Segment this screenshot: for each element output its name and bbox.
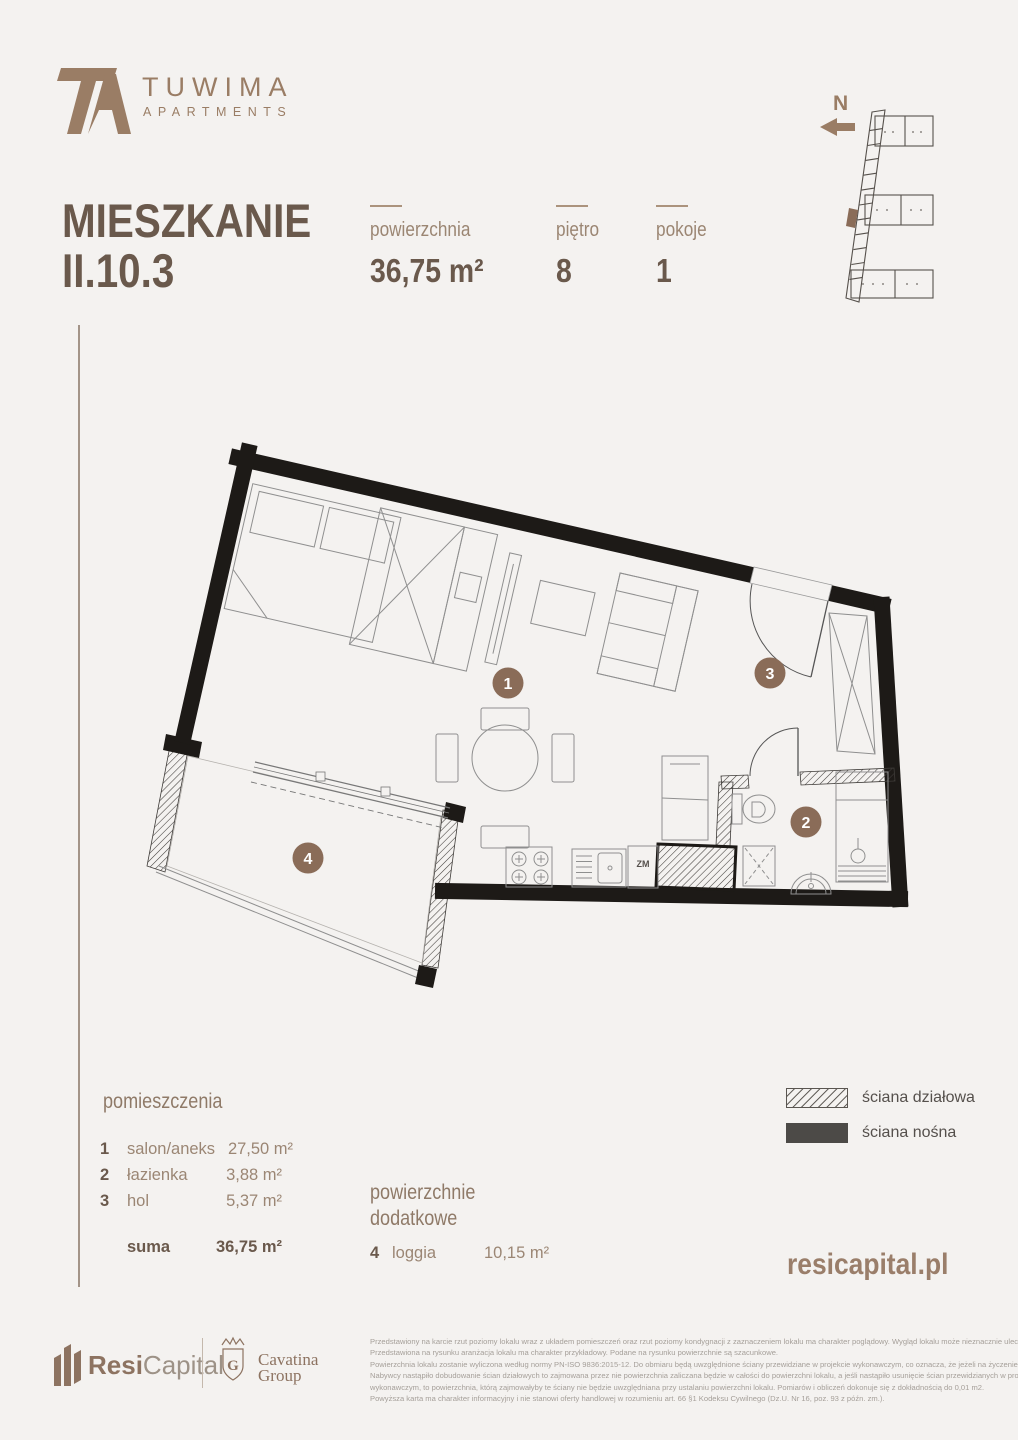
stat-rooms-label: pokoje bbox=[656, 219, 707, 242]
chair bbox=[552, 734, 574, 782]
stat-area: powierzchnia 36,75 m² bbox=[370, 205, 502, 290]
legend-partition-label: ściana działowa bbox=[862, 1089, 975, 1107]
dishwasher-label: ZM bbox=[637, 859, 650, 869]
cavatina-logo-icon: G bbox=[216, 1336, 250, 1386]
sum-label: suma bbox=[127, 1238, 204, 1257]
load-bearing-walls bbox=[184, 452, 900, 899]
marker-living-num: 1 bbox=[504, 676, 513, 693]
table-row: 3 hol 5,37 m² bbox=[100, 1188, 282, 1214]
stat-area-label: powierzchnia bbox=[370, 219, 470, 242]
resicapital-logo: ResiCapital bbox=[88, 1350, 224, 1381]
disclaimer: Przedstawiony na karcie rzut poziomy lok… bbox=[370, 1336, 1010, 1404]
room-markers: 1 2 3 4 bbox=[293, 658, 822, 874]
room-name: hol bbox=[127, 1192, 204, 1211]
partition-wall-swatch bbox=[786, 1088, 848, 1108]
floor-drain-icon bbox=[851, 849, 865, 863]
building-locator: N bbox=[815, 80, 1010, 320]
room-area: 5,37 m² bbox=[204, 1192, 282, 1211]
stat-rooms-value: 1 bbox=[656, 252, 672, 290]
room-num: 4 bbox=[370, 1244, 392, 1263]
wardrobe bbox=[349, 508, 497, 671]
room-area: 3,88 m² bbox=[204, 1166, 282, 1185]
room-name: łazienka bbox=[127, 1166, 204, 1185]
building-outline bbox=[846, 110, 933, 302]
brand-monogram-icon bbox=[55, 66, 135, 136]
room-area: 27,50 m² bbox=[215, 1140, 293, 1159]
additional-table: 4 loggia 10,15 m² bbox=[370, 1240, 610, 1266]
room-num: 2 bbox=[100, 1166, 127, 1185]
resi-light: Capital bbox=[143, 1350, 224, 1380]
room-num: 3 bbox=[100, 1192, 127, 1211]
bathroom-door-arc bbox=[750, 728, 798, 776]
chair bbox=[481, 708, 529, 730]
table-row: 2 łazienka 3,88 m² bbox=[100, 1162, 282, 1188]
legend-partition: ściana działowa bbox=[786, 1088, 975, 1108]
marker-loggia-num: 4 bbox=[304, 851, 313, 868]
disclaimer-line: Przedstawiony na karcie rzut poziomy lok… bbox=[370, 1336, 1010, 1347]
floor-plan-card: TUWIMA APARTMENTS MIESZKANIE II.10.3 pow… bbox=[0, 0, 1018, 1440]
stat-tick bbox=[370, 205, 402, 207]
rooms-heading: pomieszczenia bbox=[103, 1090, 222, 1114]
table-row: 1 salon/aneks 27,50 m² bbox=[100, 1136, 282, 1162]
stat-tick bbox=[656, 205, 688, 207]
resi-bold: Resi bbox=[88, 1350, 143, 1380]
additional-heading: powierzchnie dodatkowe bbox=[370, 1180, 499, 1232]
marker-hall-num: 3 bbox=[766, 666, 775, 683]
room-num: 1 bbox=[100, 1140, 127, 1159]
hall-wardrobe bbox=[829, 613, 875, 754]
disclaimer-line: Powyższa karta ma charakter informacyjny… bbox=[370, 1393, 1010, 1404]
table-sum-row: suma 36,75 m² bbox=[100, 1234, 282, 1260]
disclaimer-line: Powierzchnia lokalu zostanie wyliczona w… bbox=[370, 1359, 1010, 1370]
page-title: MIESZKANIE II.10.3 bbox=[62, 196, 352, 296]
table-row: 4 loggia 10,15 m² bbox=[370, 1240, 610, 1266]
toilet-tank bbox=[732, 794, 742, 824]
room-area: 10,15 m² bbox=[484, 1244, 610, 1263]
disclaimer-line: Nabywcy nastąpiło dobudowanie ścian dzia… bbox=[370, 1370, 1010, 1381]
floor-plan: ZM bbox=[130, 420, 950, 1020]
cavatina-line2: Group bbox=[258, 1368, 318, 1384]
stat-area-value: 36,75 m² bbox=[370, 252, 484, 290]
sum-value: 36,75 m² bbox=[204, 1238, 282, 1257]
unit-number: II.10.3 bbox=[62, 246, 174, 296]
website-link[interactable]: resicapital.pl bbox=[787, 1248, 948, 1282]
building-unit-dots bbox=[862, 131, 922, 285]
north-label: N bbox=[833, 92, 848, 115]
disclaimer-line: wykonawczym, to powierzchnia, którą zajm… bbox=[370, 1382, 1010, 1393]
brand-subtitle: APARTMENTS bbox=[143, 105, 292, 119]
loggia-window bbox=[251, 762, 450, 828]
coffee-table bbox=[531, 580, 595, 635]
chair bbox=[436, 734, 458, 782]
stat-floor-value: 8 bbox=[556, 252, 572, 290]
rooms-table: 1 salon/aneks 27,50 m² 2 łazienka 3,88 m… bbox=[100, 1136, 282, 1260]
footer-divider bbox=[202, 1338, 203, 1388]
room-name: loggia bbox=[392, 1244, 484, 1263]
north-arrow-icon bbox=[820, 118, 855, 136]
sofa bbox=[597, 573, 698, 691]
toilet-icon bbox=[743, 795, 775, 823]
disclaimer-line: Przedstawiona na rysunku aranżacja lokal… bbox=[370, 1347, 1010, 1358]
stat-floor: piętro 8 bbox=[556, 205, 606, 290]
cavatina-logo-text: Cavatina Group bbox=[258, 1352, 318, 1384]
brand-name: TUWIMA bbox=[142, 72, 293, 103]
legend: ściana działowa ściana nośna bbox=[786, 1088, 975, 1158]
stat-floor-label: piętro bbox=[556, 219, 599, 242]
resicapital-logo-icon bbox=[54, 1340, 82, 1386]
left-rule bbox=[78, 325, 80, 1287]
stat-rooms: pokoje 1 bbox=[656, 205, 715, 290]
legend-load-bearing-label: ściana nośna bbox=[862, 1124, 956, 1142]
title-label: MIESZKANIE bbox=[62, 196, 311, 246]
room-name: salon/aneks bbox=[127, 1140, 215, 1159]
marker-bath-num: 2 bbox=[802, 815, 811, 832]
legend-load-bearing: ściana nośna bbox=[786, 1123, 975, 1143]
cavatina-initial: G bbox=[227, 1358, 239, 1374]
shaft bbox=[656, 844, 736, 890]
stat-tick bbox=[556, 205, 588, 207]
tv-panel bbox=[485, 553, 522, 665]
load-bearing-wall-swatch bbox=[786, 1123, 848, 1143]
chair bbox=[481, 826, 529, 848]
kitchen-sink bbox=[572, 849, 626, 887]
